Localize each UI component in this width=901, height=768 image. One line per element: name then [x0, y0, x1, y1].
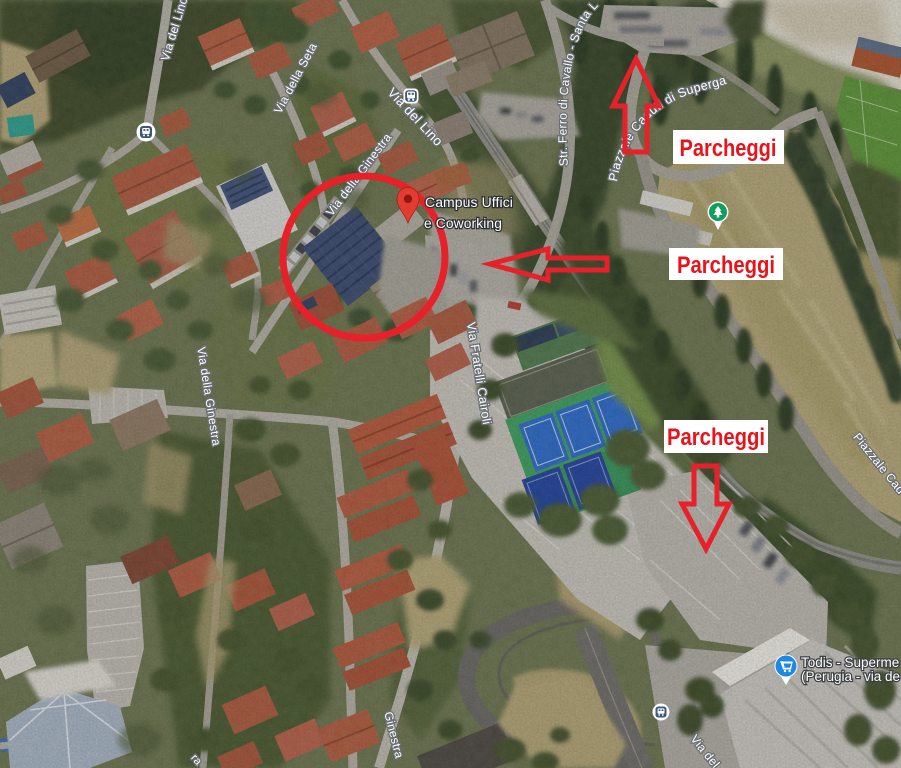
svg-text:Parcheggi: Parcheggi [680, 135, 777, 162]
svg-text:(Perugia - via de: (Perugia - via de [801, 669, 900, 684]
svg-text:Campus Uffici: Campus Uffici [425, 195, 513, 211]
svg-text:e Coworking: e Coworking [424, 216, 502, 232]
svg-text:Todis - Superme: Todis - Superme [801, 655, 899, 670]
svg-text:Parcheggi: Parcheggi [667, 424, 765, 451]
svg-text:Parcheggi: Parcheggi [677, 252, 775, 279]
